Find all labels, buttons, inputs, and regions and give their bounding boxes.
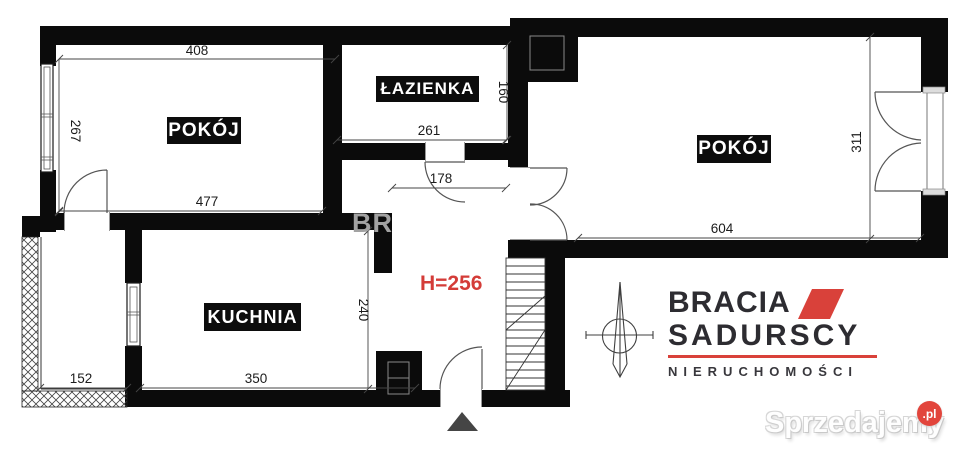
room-label-pokoj-left: POKÓJ <box>167 117 241 144</box>
logo-text-nieruchomosci: NIERUCHOMOŚCI <box>668 364 877 379</box>
dimension-room-left-bottom: 477 <box>55 194 326 215</box>
floor-plan-drawing: 408 267 477 261 160 178 <box>0 0 960 458</box>
svg-text:408: 408 <box>186 43 209 58</box>
north-arrow-icon <box>586 282 653 377</box>
agency-logo: BRACIA SADURSCY NIERUCHOMOŚCI <box>668 288 877 379</box>
logo-underline <box>668 355 877 358</box>
svg-text:178: 178 <box>430 171 453 186</box>
site-watermark-pl-badge: .pl <box>917 401 942 426</box>
svg-text:160: 160 <box>496 81 511 104</box>
site-watermark: Sprzedajemy .pl <box>765 402 955 452</box>
room-label-kuchnia: KUCHNIA <box>204 303 301 331</box>
entrance-arrow-icon <box>447 412 478 431</box>
logo-text-bracia: BRACIA <box>668 288 791 318</box>
dimension-hall-width: 178 <box>388 171 510 192</box>
partial-watermark-text: BR <box>352 208 393 239</box>
window-room-left <box>41 64 53 172</box>
dimension-room-right-height: 311 <box>849 33 874 243</box>
svg-text:311: 311 <box>849 131 864 153</box>
svg-text:261: 261 <box>418 123 441 138</box>
svg-text:152: 152 <box>70 371 93 386</box>
logo-text-sadurscy: SADURSCY <box>668 319 877 352</box>
staircase <box>506 258 545 390</box>
dimension-room-left-width: 408 <box>55 43 339 63</box>
dimension-bathroom-width: 261 <box>333 123 510 144</box>
svg-text:477: 477 <box>196 194 219 209</box>
svg-text:604: 604 <box>711 221 734 236</box>
logo-flag-icon <box>798 289 844 319</box>
floor-plan-image: 408 267 477 261 160 178 <box>0 0 960 458</box>
svg-text:350: 350 <box>245 371 268 386</box>
room-label-pokoj-right: POKÓJ <box>697 135 771 163</box>
room-label-lazienka: ŁAZIENKA <box>376 76 479 102</box>
dimension-room-right-width: 604 <box>574 221 924 242</box>
svg-text:240: 240 <box>356 299 371 322</box>
svg-text:267: 267 <box>68 120 83 143</box>
dimension-hall-height: 240 <box>356 227 372 393</box>
window-kitchen <box>127 283 140 346</box>
ceiling-height-note: H=256 <box>420 272 482 296</box>
